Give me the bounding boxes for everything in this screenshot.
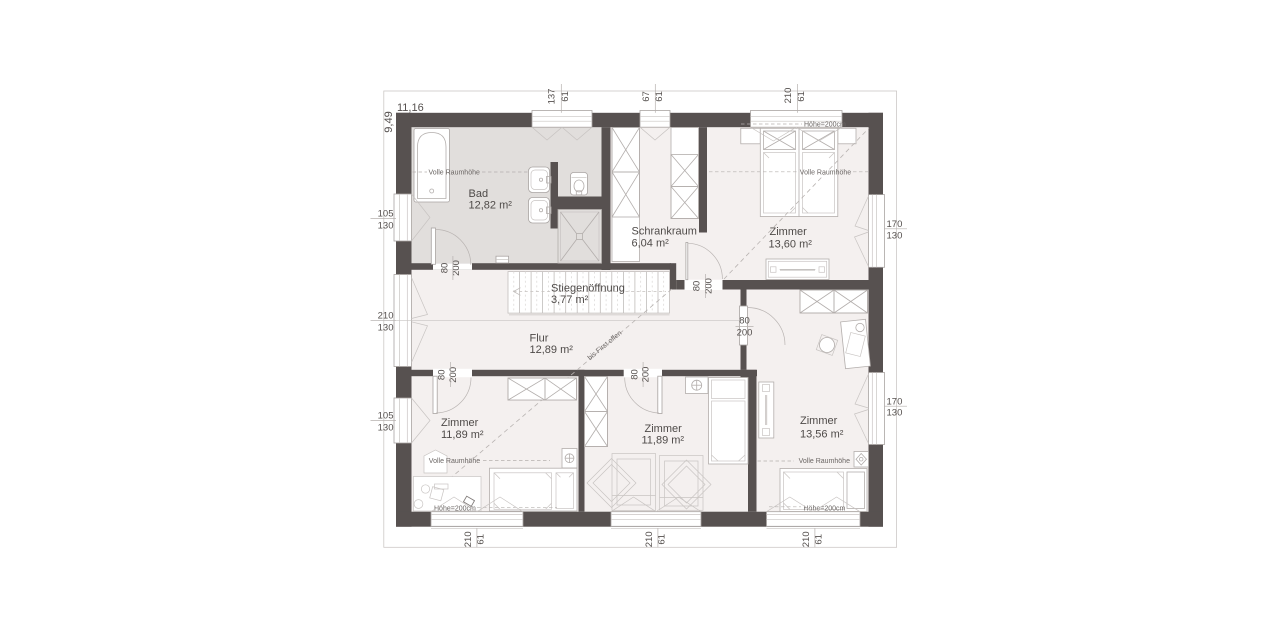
svg-text:Flur: Flur bbox=[530, 333, 549, 345]
svg-text:210: 210 bbox=[801, 531, 812, 547]
svg-text:105: 105 bbox=[378, 209, 394, 220]
svg-text:200: 200 bbox=[737, 328, 753, 339]
svg-text:Höhe=200cm: Höhe=200cm bbox=[804, 505, 846, 512]
svg-text:Bad: Bad bbox=[469, 188, 489, 200]
svg-text:210: 210 bbox=[378, 311, 394, 322]
svg-text:210: 210 bbox=[463, 531, 474, 547]
svg-text:Schrankraum: Schrankraum bbox=[632, 226, 697, 238]
svg-text:130: 130 bbox=[378, 221, 394, 232]
svg-text:6,04 m²: 6,04 m² bbox=[632, 238, 670, 250]
svg-text:11,89 m²: 11,89 m² bbox=[642, 435, 685, 447]
svg-text:210: 210 bbox=[783, 88, 794, 104]
svg-text:130: 130 bbox=[887, 231, 903, 242]
svg-text:Zimmer: Zimmer bbox=[645, 423, 683, 435]
svg-text:130: 130 bbox=[378, 323, 394, 334]
svg-text:11,89 m²: 11,89 m² bbox=[441, 429, 484, 441]
svg-text:Volle Raumhöhe: Volle Raumhöhe bbox=[429, 170, 480, 177]
svg-text:137: 137 bbox=[547, 89, 558, 105]
svg-text:Volle Raumhöhe: Volle Raumhöhe bbox=[799, 458, 850, 465]
svg-text:11,16: 11,16 bbox=[397, 102, 424, 114]
svg-text:12,82 m²: 12,82 m² bbox=[469, 200, 513, 212]
svg-text:170: 170 bbox=[887, 219, 903, 230]
svg-text:12,89 m²: 12,89 m² bbox=[530, 344, 574, 356]
svg-text:80: 80 bbox=[739, 316, 750, 327]
svg-text:130: 130 bbox=[887, 408, 903, 419]
svg-text:200: 200 bbox=[451, 260, 462, 276]
svg-text:13,60 m²: 13,60 m² bbox=[769, 239, 813, 251]
svg-text:130: 130 bbox=[378, 423, 394, 434]
svg-text:80: 80 bbox=[691, 281, 702, 292]
svg-text:Höhe=200cm: Höhe=200cm bbox=[804, 121, 846, 128]
svg-text:80: 80 bbox=[629, 369, 640, 380]
svg-text:80: 80 bbox=[437, 370, 448, 381]
svg-text:200: 200 bbox=[448, 367, 459, 383]
svg-text:105: 105 bbox=[378, 411, 394, 422]
svg-text:9,49: 9,49 bbox=[383, 111, 395, 132]
svg-text:Stiegenöffnung: Stiegenöffnung bbox=[551, 283, 625, 295]
svg-text:13,56 m²: 13,56 m² bbox=[800, 429, 844, 441]
svg-text:Zimmer: Zimmer bbox=[770, 226, 808, 238]
svg-text:Zimmer: Zimmer bbox=[800, 415, 838, 427]
svg-text:61: 61 bbox=[560, 91, 571, 102]
svg-text:210: 210 bbox=[644, 531, 655, 547]
svg-text:61: 61 bbox=[654, 91, 665, 102]
svg-text:67: 67 bbox=[641, 91, 652, 102]
svg-text:Höhe=200cm: Höhe=200cm bbox=[434, 506, 476, 513]
svg-text:Volle Raumhöhe: Volle Raumhöhe bbox=[429, 458, 480, 465]
svg-text:200: 200 bbox=[641, 367, 652, 383]
svg-text:3,77 m²: 3,77 m² bbox=[551, 294, 589, 306]
svg-text:80: 80 bbox=[439, 263, 450, 274]
svg-text:Zimmer: Zimmer bbox=[441, 417, 479, 429]
